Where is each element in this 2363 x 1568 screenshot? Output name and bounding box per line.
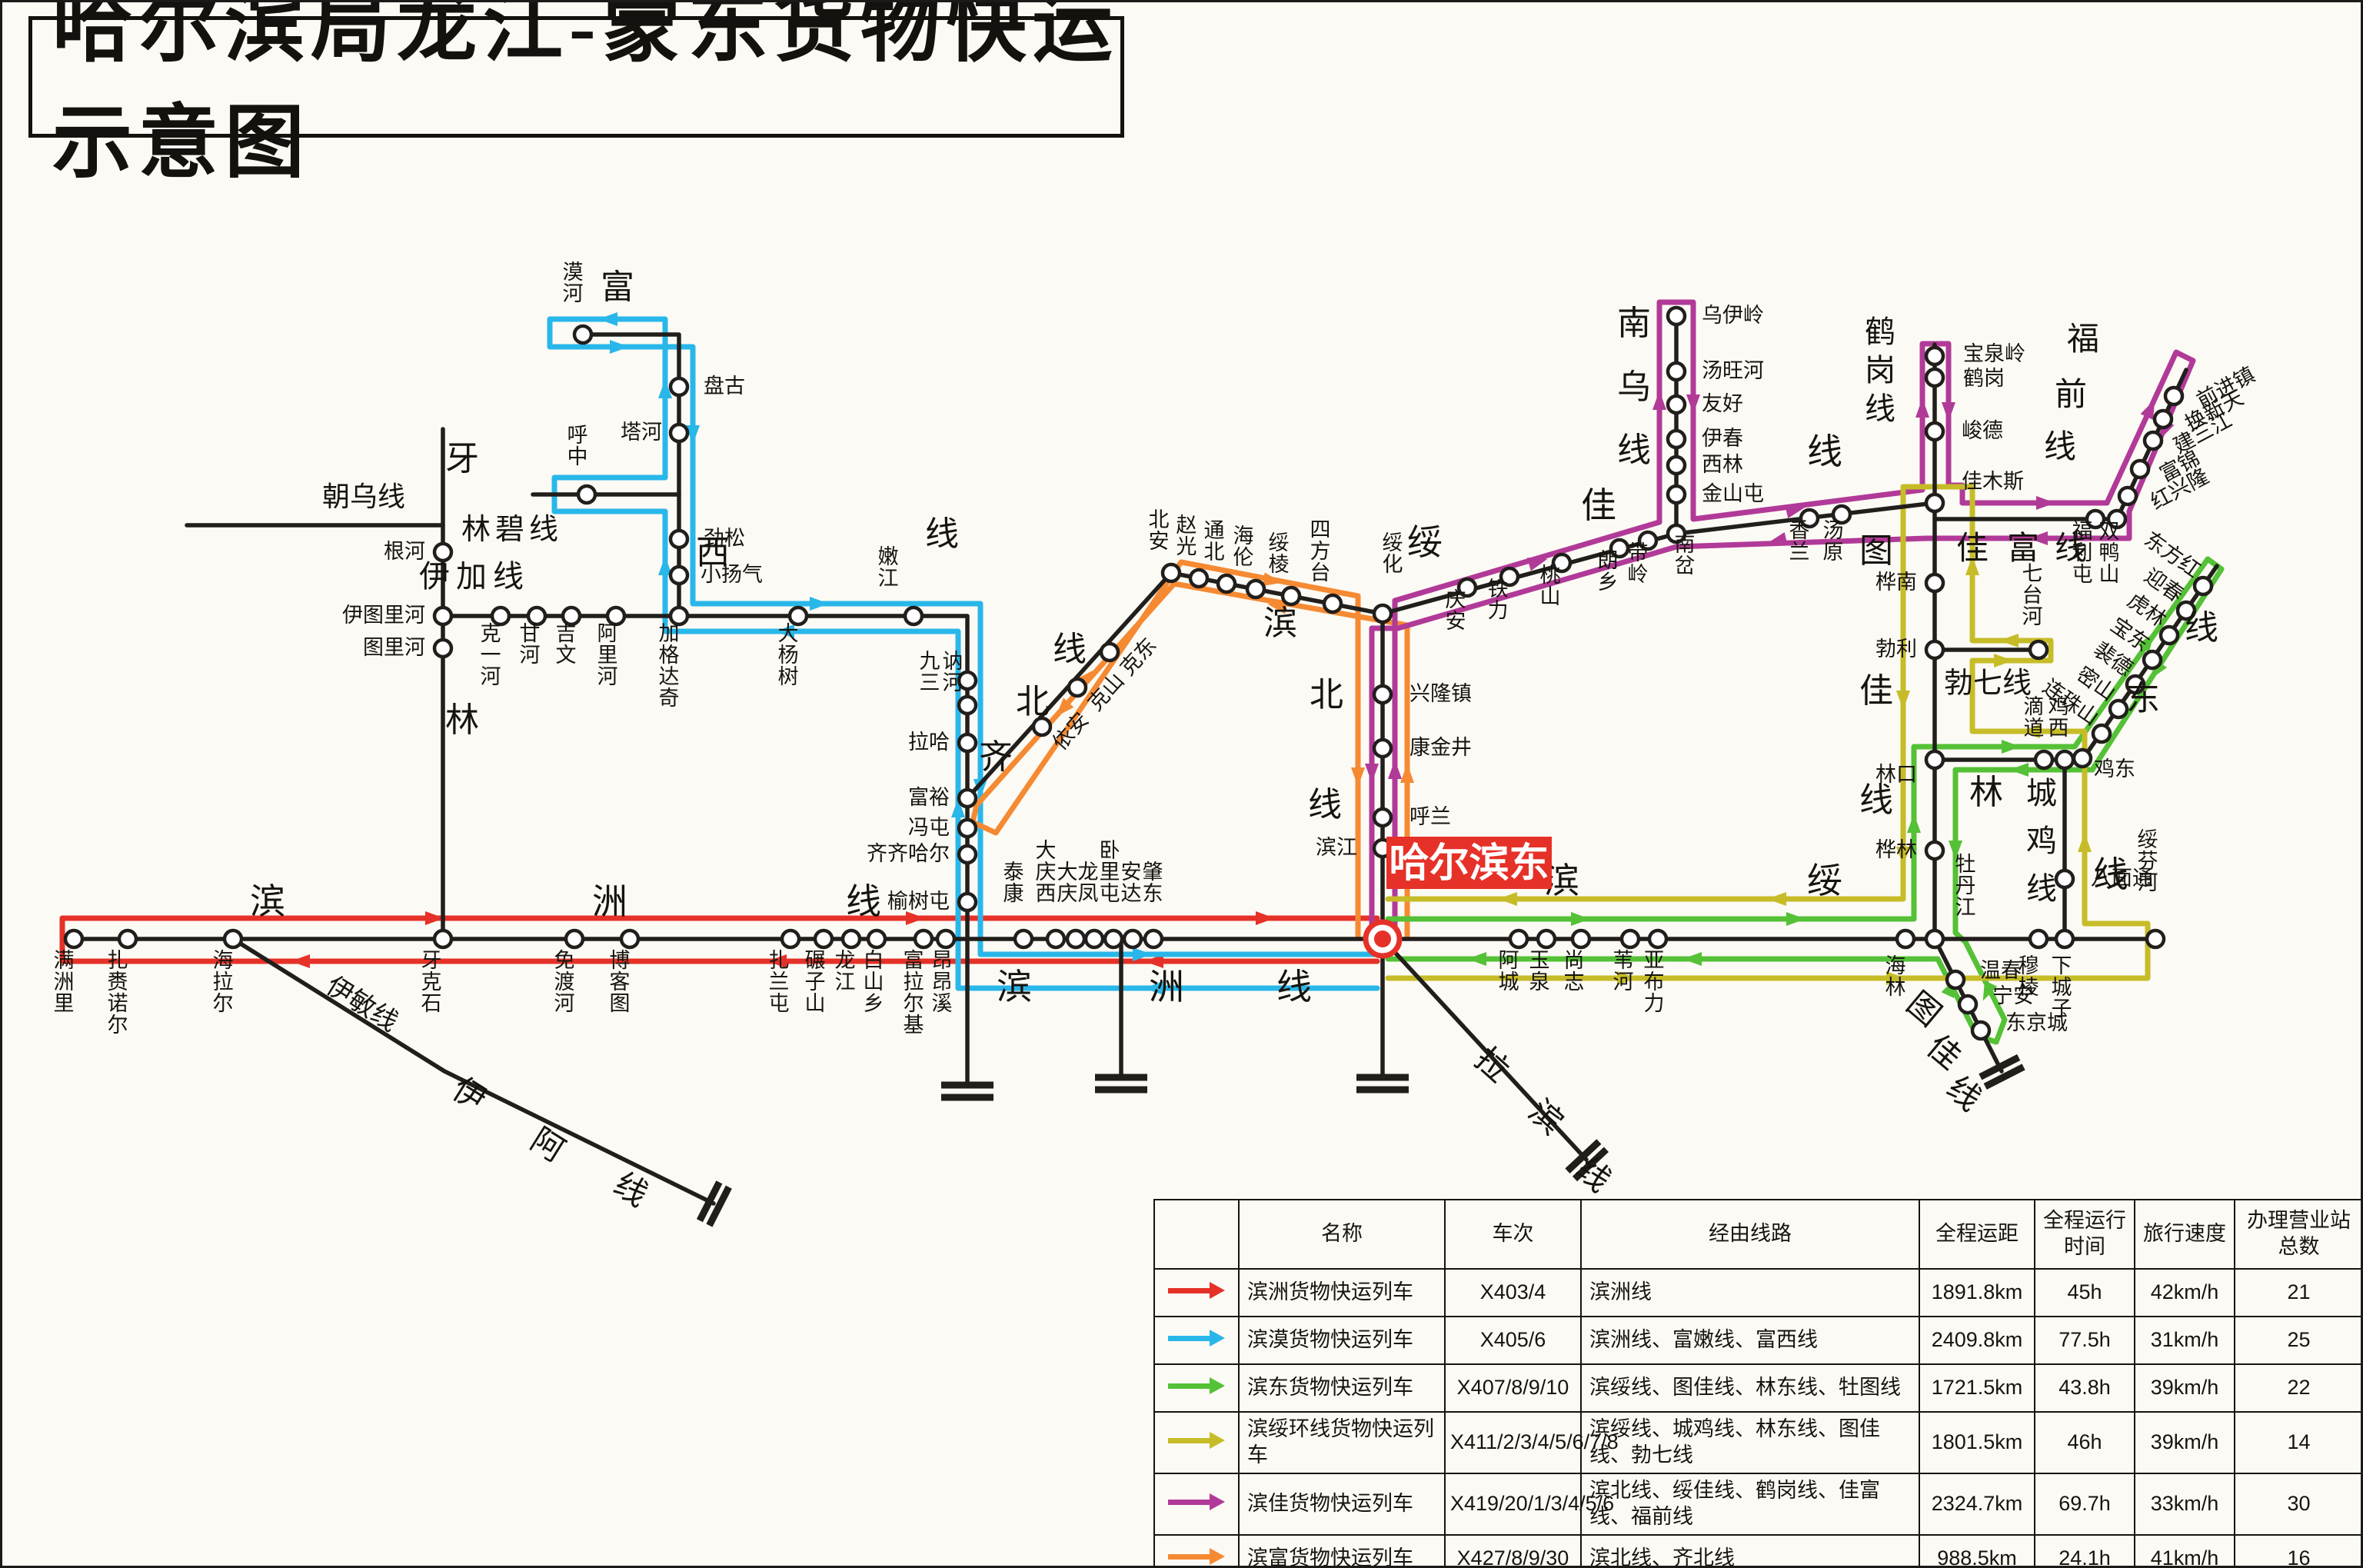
line-name: 佳 xyxy=(1859,672,1893,710)
rail-lines xyxy=(74,314,2217,1203)
line-name: 林 xyxy=(461,514,491,546)
train-via-lines: 滨北线、绥佳线、鹤岗线、佳富线、福前线 xyxy=(1581,1473,1919,1535)
station-dot xyxy=(1668,431,1685,448)
train-via-lines: 滨洲线 xyxy=(1581,1269,1919,1317)
station-label: 汤旺河 xyxy=(1702,359,1764,382)
station-dot xyxy=(434,930,451,947)
line-name: 福 xyxy=(2067,321,2099,357)
line-name: 线 xyxy=(2055,530,2087,566)
station-label: 桦林 xyxy=(1875,838,1917,861)
train-time: 77.5h xyxy=(2035,1317,2135,1364)
train-stops: 14 xyxy=(2235,1412,2363,1473)
legend-header-4: 全程运行时间 xyxy=(2035,1200,2135,1269)
line-name: 图 xyxy=(1900,984,1948,1033)
legend-header-6: 办理营业站总数 xyxy=(2235,1200,2363,1269)
station-dot xyxy=(959,894,976,911)
route-arrow xyxy=(1256,911,1275,925)
station-dot xyxy=(434,544,451,561)
station-dot xyxy=(1947,971,1964,988)
station-label: 滴道 xyxy=(2024,695,2045,740)
station-label: 呼中 xyxy=(567,424,588,468)
legend-header-row: 名称车次经由线路全程运距全程运行时间旅行速度办理营业站总数 xyxy=(1154,1200,2363,1269)
station-dot xyxy=(1510,930,1527,947)
line-name: 绥 xyxy=(1407,522,1443,562)
station-label: 西林 xyxy=(1702,453,1743,476)
station-label: 大杨树 xyxy=(778,622,799,688)
station-dot xyxy=(2195,578,2212,594)
station-dot xyxy=(1926,751,1943,768)
station-label: 白山乡 xyxy=(864,949,884,1015)
station-dot xyxy=(566,930,583,947)
station-label: 讷河 xyxy=(943,650,964,694)
train-time: 69.7h xyxy=(2035,1473,2135,1535)
route-arrow-icon xyxy=(1168,1493,1225,1510)
line-name: 线 xyxy=(1276,967,1312,1007)
route-arrow-icon xyxy=(1168,1377,1225,1394)
station-label: 汤原 xyxy=(1823,519,1844,564)
legend-header-2: 经由线路 xyxy=(1581,1200,1919,1269)
station-dot xyxy=(2110,701,2127,717)
station-dot xyxy=(1897,930,1914,947)
station-dot xyxy=(1926,348,1943,365)
station-label: 温春 xyxy=(1980,959,2022,982)
station-label: 嫩江 xyxy=(878,545,899,590)
route-arrow xyxy=(1388,760,1402,779)
line-name: 线 xyxy=(1859,781,1893,819)
station-dot xyxy=(1374,605,1391,622)
train-stops: 16 xyxy=(2235,1535,2363,1568)
station-label: 桃山 xyxy=(1540,564,1561,608)
train-speed: 41km/h xyxy=(2135,1535,2235,1568)
route-arrow xyxy=(1896,691,1910,710)
train-time: 43.8h xyxy=(2035,1364,2135,1412)
routes xyxy=(62,302,2222,1042)
station-dot xyxy=(1668,396,1685,413)
line-name: 线 xyxy=(1617,431,1651,469)
station-label: 富裕 xyxy=(908,786,950,809)
station-label: 漠河 xyxy=(563,261,584,305)
station-label: 富拉尔基 xyxy=(904,949,924,1037)
legend-row-1: 滨漠货物快运列车X405/6滨洲线、富嫩线、富西线2409.8km77.5h31… xyxy=(1154,1317,2363,1364)
station-dot xyxy=(1324,595,1341,612)
legend-header-1: 车次 xyxy=(1445,1200,1581,1269)
station-label: 南岔 xyxy=(1675,533,1696,578)
line-name: 线 xyxy=(1308,786,1342,824)
line-name: 线 xyxy=(2093,854,2128,894)
station-dot xyxy=(2119,488,2136,504)
route-color-cell xyxy=(1154,1412,1239,1473)
train-distance: 1801.5km xyxy=(1919,1412,2035,1473)
station-label: 兴隆镇 xyxy=(1409,682,1472,705)
station-label: 阿城 xyxy=(1499,949,1519,994)
train-stops: 25 xyxy=(2235,1317,2363,1364)
line-name: 滨 xyxy=(1263,604,1297,642)
station-dot xyxy=(65,930,82,947)
station-dot xyxy=(1067,930,1084,947)
station-dot xyxy=(1086,930,1103,947)
route-color-cell xyxy=(1154,1473,1239,1535)
train-stops: 30 xyxy=(2235,1473,2363,1535)
train-distance: 1721.5km xyxy=(1919,1364,2035,1412)
diagram-page: 哈尔滨局龙江-蒙东货物快运示意图 满洲里扎赉诺尔海拉尔牙克石免渡河博客图扎兰屯碾… xyxy=(0,0,2363,1568)
station-label: 阿里河 xyxy=(597,622,618,688)
station-dot xyxy=(1668,363,1685,380)
train-stops: 21 xyxy=(2235,1269,2363,1317)
route-arrow xyxy=(1351,767,1365,787)
station-label: 佳木斯 xyxy=(1962,470,2024,493)
train-distance: 2324.7km xyxy=(1919,1473,2035,1535)
station-label: 碾子山 xyxy=(805,949,826,1015)
station-label: 泰康 xyxy=(1003,861,1024,905)
station-dot xyxy=(868,930,885,947)
train-name: 滨东货物快运列车 xyxy=(1239,1364,1445,1412)
station-dot xyxy=(1190,570,1207,587)
train-distance: 2409.8km xyxy=(1919,1317,2035,1364)
train-via-lines: 滨绥线、图佳线、林东线、牡图线 xyxy=(1581,1364,1919,1412)
line-name: 北 xyxy=(1310,676,1343,714)
station-dot xyxy=(671,378,687,395)
station-dot xyxy=(1926,369,1943,386)
line-name: 图 xyxy=(1859,532,1893,570)
station-dot xyxy=(621,930,638,947)
station-label: 免渡河 xyxy=(554,949,575,1015)
train-name: 滨洲货物快运列车 xyxy=(1239,1269,1445,1317)
station-label: 龙江 xyxy=(835,949,856,994)
station-dot xyxy=(671,531,687,548)
line-name: 加 xyxy=(456,560,487,594)
station-dot xyxy=(2074,750,2091,767)
station-dot xyxy=(1283,588,1300,604)
station-label: 香兰 xyxy=(1789,519,1810,564)
train-name: 滨漠货物快运列车 xyxy=(1239,1317,1445,1364)
legend-row-4: 滨佳货物快运列车X419/20/1/3/4/5/6滨北线、绥佳线、鹤岗线、佳富线… xyxy=(1154,1473,2363,1535)
route-arrow xyxy=(1907,814,1921,833)
station-label: 图里河 xyxy=(363,636,425,659)
station-dot xyxy=(2155,411,2172,428)
station-label: 吉文 xyxy=(556,622,577,667)
station-label: 扎赉诺尔 xyxy=(108,949,128,1037)
route-arrow xyxy=(2002,740,2021,754)
route-arrow xyxy=(2009,763,2029,777)
station-label: 苇河 xyxy=(1613,949,1634,994)
route-arrow xyxy=(1686,394,1700,414)
line-name: 乌 xyxy=(1617,368,1651,406)
station-label: 通北 xyxy=(1204,519,1225,564)
route-arrow xyxy=(610,340,629,354)
train-via-lines: 滨北线、齐北线 xyxy=(1581,1535,1919,1568)
station-dot xyxy=(2093,725,2110,742)
train-speed: 33km/h xyxy=(2135,1473,2235,1535)
station-label: 海伦 xyxy=(1233,524,1254,569)
station-dot xyxy=(1374,686,1391,703)
train-speed: 39km/h xyxy=(2135,1364,2235,1412)
legend-table: 名称车次经由线路全程运距全程运行时间旅行速度办理营业站总数滨洲货物快运列车X40… xyxy=(1153,1199,2363,1568)
station-dot xyxy=(2147,930,2164,947)
station-dot xyxy=(1374,740,1391,757)
station-label: 庆安 xyxy=(1446,588,1466,633)
route-arrow xyxy=(1652,391,1666,410)
train-name: 滨富货物快运列车 xyxy=(1239,1535,1445,1568)
station-label: 鹤岗 xyxy=(1963,367,2005,390)
station-label: 绥化 xyxy=(1383,531,1403,576)
station-dot xyxy=(1538,930,1555,947)
station-label: 满洲里 xyxy=(54,949,75,1015)
station-label: 博客图 xyxy=(610,949,631,1015)
line-name: 富 xyxy=(2007,530,2039,566)
station-dot xyxy=(1101,644,1118,661)
station-dot xyxy=(2145,432,2162,449)
station-label: 桦南 xyxy=(1875,571,1917,594)
station-dot xyxy=(2030,930,2047,947)
line-name: 线 xyxy=(2185,609,2218,647)
station-label: 大庆 xyxy=(1057,861,1078,905)
station-dot xyxy=(959,846,976,863)
station-dot xyxy=(2056,751,2073,768)
train-distance: 1891.8km xyxy=(1919,1269,2035,1317)
train-speed: 42km/h xyxy=(2135,1269,2235,1317)
route-arrow xyxy=(810,597,829,611)
line-name: 线 xyxy=(1807,431,1842,471)
station-label: 四方台 xyxy=(1310,518,1331,584)
station-label: 九三 xyxy=(920,650,940,694)
station-label: 七台河 xyxy=(2022,562,2043,628)
station-label: 昂昂溪 xyxy=(932,949,953,1015)
station-dot xyxy=(1926,423,1943,440)
station-dot xyxy=(1926,494,1943,511)
station-dot xyxy=(959,790,976,807)
station-dot xyxy=(1033,718,1050,735)
route-arrow xyxy=(1682,952,1702,966)
station-label: 峻德 xyxy=(1962,419,2003,442)
station-label: 亚布力 xyxy=(1644,949,1665,1015)
station-label: 榆树屯 xyxy=(887,890,950,913)
station-dot xyxy=(843,930,860,947)
station-label: 牙克石 xyxy=(421,949,442,1015)
train-number: X411/2/3/4/5/6/7/8 xyxy=(1445,1412,1581,1473)
station-dot xyxy=(1105,930,1122,947)
route-arrow xyxy=(1767,892,1786,906)
station-label: 牡丹江 xyxy=(1955,853,1976,919)
line-name: 碧 xyxy=(495,514,524,546)
train-name: 滨绥环线货物快运列车 xyxy=(1239,1412,1445,1473)
station-dot xyxy=(1247,581,1264,598)
train-time: 45h xyxy=(2035,1269,2135,1317)
line-name: 朝乌线 xyxy=(322,481,405,512)
route-arrow xyxy=(1994,654,2013,667)
station-dot xyxy=(815,930,832,947)
station-label: 金山屯 xyxy=(1702,482,1764,505)
line-name: 鸡 xyxy=(2026,824,2057,858)
line-name: 岗 xyxy=(1865,354,1895,388)
title-box: 哈尔滨局龙江-蒙东货物快运示意图 xyxy=(28,16,1124,138)
station-dot xyxy=(1926,842,1943,859)
route-arrow xyxy=(1786,912,1806,926)
station-label: 友好 xyxy=(1702,392,1743,415)
station-label: 盘古 xyxy=(704,375,745,398)
train-number: X405/6 xyxy=(1445,1317,1581,1364)
line-name: 滨 xyxy=(997,967,1032,1007)
station-dot xyxy=(1374,809,1391,826)
station-label: 伊图里河 xyxy=(342,604,425,627)
station-dot xyxy=(225,930,241,947)
station-label: 大庆西 xyxy=(1036,839,1057,905)
line-name: 林 xyxy=(445,701,479,739)
line-name: 齐 xyxy=(979,738,1013,776)
route-arrow xyxy=(1365,764,1379,783)
line-name: 林 xyxy=(1969,774,2003,811)
line-name: 线 xyxy=(2026,872,2057,906)
line-name: 鹤 xyxy=(1865,315,1895,349)
station-dot xyxy=(2056,871,2073,887)
legend-row-0: 滨洲货物快运列车X403/4滨洲线1891.8km45h42km/h21 xyxy=(1154,1269,2363,1317)
legend-header-3: 全程运距 xyxy=(1919,1200,2035,1269)
train-time: 24.1h xyxy=(2035,1535,2135,1568)
station-dot xyxy=(578,486,595,503)
station-label: 肇东 xyxy=(1143,861,1163,905)
station-label: 拉哈 xyxy=(908,731,950,754)
station-dot xyxy=(959,820,976,837)
station-dot xyxy=(905,608,922,624)
station-label: 朗乡 xyxy=(1598,549,1619,594)
route-arrow xyxy=(1571,912,1590,926)
route-arrow xyxy=(2078,833,2092,852)
line-name: 南 xyxy=(1617,305,1651,342)
route-arrow xyxy=(906,911,925,925)
train-via-lines: 滨洲线、富嫩线、富西线 xyxy=(1581,1317,1919,1364)
station-label: 北安 xyxy=(1149,508,1170,553)
station-label: 克一河 xyxy=(481,622,501,688)
train-via-lines: 滨绥线、城鸡线、林东线、图佳线、勃七线 xyxy=(1581,1412,1919,1473)
station-dot xyxy=(2035,751,2052,768)
station-label: 龙凤 xyxy=(1078,861,1099,905)
station-label: 宁安 xyxy=(1992,984,2034,1007)
station-dot xyxy=(1649,930,1666,947)
route-color-cell xyxy=(1154,1364,1239,1412)
station-label: 鸡东 xyxy=(2094,757,2135,781)
line-name: 前 xyxy=(2055,376,2087,412)
station-label: 呼兰 xyxy=(1409,805,1451,828)
line-name: 城 xyxy=(2026,777,2057,811)
station-label: 冯屯 xyxy=(908,816,950,839)
station-label: 东京城 xyxy=(2005,1011,2068,1034)
station-label: 海拉尔 xyxy=(213,949,234,1015)
station-dot xyxy=(434,608,451,624)
station-label: 绥棱 xyxy=(1269,531,1290,576)
station-dot xyxy=(1668,486,1685,503)
station-dot xyxy=(1124,930,1141,947)
station-dot xyxy=(959,697,976,714)
train-number: X403/4 xyxy=(1445,1269,1581,1317)
route-color-cell xyxy=(1154,1317,1239,1364)
station-dot xyxy=(1972,1022,1989,1039)
route-arrow xyxy=(1999,634,2019,648)
station-dot xyxy=(2030,641,2047,658)
station-dot xyxy=(1959,996,1976,1013)
station-label: 海林 xyxy=(1885,954,1906,999)
line-name: 线 xyxy=(529,514,558,546)
line-name: 牙 xyxy=(445,440,479,478)
train-number: X427/8/9/30 xyxy=(1445,1535,1581,1568)
train-time: 46h xyxy=(2035,1412,2135,1473)
station-label: 扎兰屯 xyxy=(769,949,790,1015)
route-color-cell xyxy=(1154,1269,1239,1317)
station-dot xyxy=(119,930,136,947)
station-label: 勃利 xyxy=(1875,638,1917,661)
station-label: 带岭 xyxy=(1628,541,1649,586)
route-arrow xyxy=(291,954,310,968)
train-stops: 22 xyxy=(2235,1364,2363,1412)
line-name: 伊 xyxy=(419,560,450,594)
line-name: 富 xyxy=(601,268,634,306)
train-name: 滨佳货物快运列车 xyxy=(1239,1473,1445,1535)
station-dot xyxy=(1926,574,1943,591)
line-name: 线 xyxy=(493,560,524,594)
station-dot xyxy=(1926,930,1943,947)
station-dot xyxy=(2144,651,2161,668)
line-name: 线 xyxy=(2044,428,2076,464)
station-dot xyxy=(2132,461,2148,478)
train-speed: 39km/h xyxy=(2135,1412,2235,1473)
station-dot xyxy=(1218,575,1235,592)
legend-header-0: 名称 xyxy=(1239,1200,1445,1269)
station-dot xyxy=(1622,930,1639,947)
line-name: 洲 xyxy=(1149,967,1184,1007)
route-arrow-icon xyxy=(1168,1282,1225,1299)
station-dot xyxy=(1668,308,1685,325)
route-arrow xyxy=(598,312,617,326)
station-label: 加格达奇 xyxy=(659,622,680,710)
route-arrow xyxy=(1942,402,1955,421)
line-name: 佳 xyxy=(1956,530,1989,566)
line-name: 勃七线 xyxy=(1944,667,2032,700)
station-label: 康金井 xyxy=(1409,736,1472,759)
station-dot xyxy=(1573,930,1589,947)
station-dot xyxy=(782,930,799,947)
line-name: 东 xyxy=(2126,680,2160,717)
station-dot xyxy=(434,640,451,657)
station-label: 塔河 xyxy=(621,421,662,444)
station-dot xyxy=(959,734,976,751)
station-label: 赵光 xyxy=(1177,514,1197,558)
station-label: 玉泉 xyxy=(1529,949,1550,994)
station-label: 乌伊岭 xyxy=(1702,304,1764,327)
station-dot xyxy=(915,930,932,947)
legend-row-3: 滨绥环线货物快运列车X411/2/3/4/5/6/7/8滨绥线、城鸡线、林东线、… xyxy=(1154,1412,2363,1473)
station-dot xyxy=(1047,930,1064,947)
station-label: 齐齐哈尔 xyxy=(867,842,950,865)
line-name: 佳 xyxy=(1581,485,1616,525)
route-arrow xyxy=(1498,892,1517,906)
station-dot xyxy=(1145,930,1162,947)
station-dot xyxy=(2161,627,2178,644)
hub-label: 哈尔滨东 xyxy=(1389,841,1549,886)
station-dot xyxy=(671,567,687,584)
station-dot xyxy=(671,424,687,441)
station-dot xyxy=(1163,564,1180,581)
station-dot xyxy=(2056,930,2073,947)
route-arrow-icon xyxy=(1168,1548,1225,1565)
route-arrow xyxy=(2036,496,2055,510)
station-dot xyxy=(1668,457,1685,474)
station-label: 伊春 xyxy=(1702,427,1743,450)
line-name: 线 xyxy=(1053,631,1087,668)
legend-header-5: 旅行速度 xyxy=(2135,1200,2235,1269)
legend-row-5: 滨富货物快运列车X427/8/9/30滨北线、齐北线988.5km24.1h41… xyxy=(1154,1535,2363,1568)
line-name: 西 xyxy=(696,534,730,571)
route-arrow xyxy=(1915,398,1929,418)
route-arrow-icon xyxy=(1168,1432,1225,1449)
station-dot xyxy=(574,326,591,343)
